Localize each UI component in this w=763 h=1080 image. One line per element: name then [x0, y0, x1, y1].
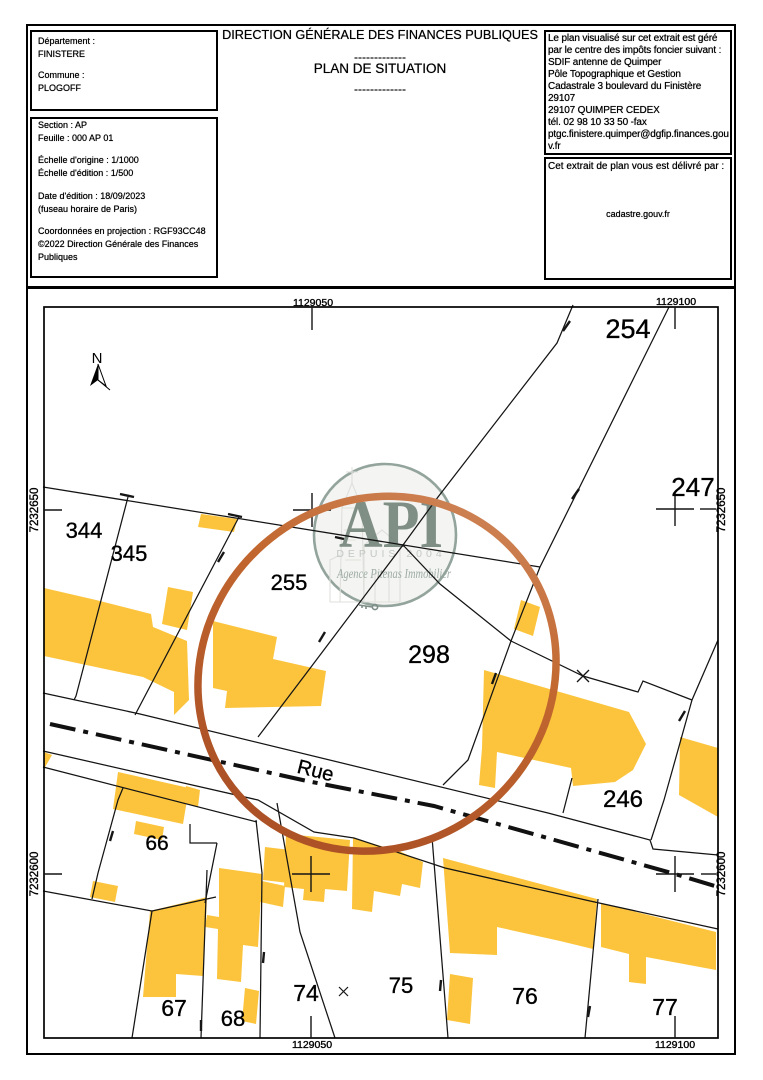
svg-text:76: 76 [512, 983, 538, 1009]
svg-text:77: 77 [652, 994, 678, 1020]
svg-text:247: 247 [671, 472, 714, 502]
svg-text:74: 74 [293, 980, 319, 1006]
svg-text:1129050: 1129050 [293, 297, 333, 309]
svg-text:1129100: 1129100 [655, 1039, 695, 1051]
svg-text:298: 298 [408, 641, 450, 669]
svg-text:255: 255 [271, 570, 308, 595]
svg-text:1129050: 1129050 [292, 1039, 332, 1051]
svg-text:344: 344 [66, 518, 103, 543]
svg-text:Agence Pitenas Immobilier: Agence Pitenas Immobilier [336, 567, 451, 582]
svg-text:246: 246 [603, 786, 643, 813]
svg-text:N: N [92, 350, 103, 367]
svg-text:75: 75 [389, 973, 413, 998]
svg-text:66: 66 [145, 832, 168, 855]
svg-text:67: 67 [161, 995, 187, 1021]
svg-text:7232600: 7232600 [716, 852, 728, 897]
svg-text:7232600: 7232600 [29, 852, 41, 897]
svg-text:68: 68 [221, 1006, 245, 1031]
svg-text:7232650: 7232650 [716, 488, 728, 533]
svg-text:7232650: 7232650 [29, 488, 41, 533]
svg-text:1129100: 1129100 [656, 296, 696, 308]
svg-text:254: 254 [605, 314, 650, 344]
svg-text:345: 345 [111, 541, 148, 566]
